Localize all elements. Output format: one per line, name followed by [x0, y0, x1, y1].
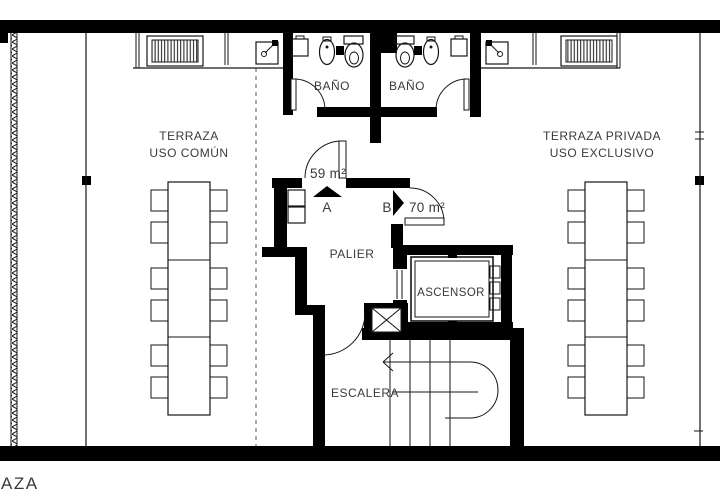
ascensor-label: ASCENSOR	[417, 287, 485, 299]
bathroom-right-wall	[470, 33, 481, 117]
sink-fixture	[256, 40, 278, 64]
duct-shaft	[372, 308, 401, 332]
elevator-right-wall	[501, 245, 512, 332]
stair-walk-line	[383, 353, 498, 418]
unit-a-area-label: 59 m²	[310, 166, 346, 181]
left-bathroom-label: BAÑO	[314, 79, 350, 93]
unit-a-label: A	[322, 200, 331, 215]
unit-a-arrow-icon	[313, 186, 342, 197]
right-terrace-label-line2: USO EXCLUSIVO	[550, 146, 655, 160]
toilet-fixture	[395, 36, 414, 67]
palier-closet	[288, 190, 305, 223]
escalera-label: ESCALERA	[331, 386, 399, 400]
left-bathroom-fixtures	[292, 36, 363, 67]
unit-b-arrow-icon	[393, 190, 404, 216]
washbasin-fixture	[292, 39, 308, 56]
bidet-fixture	[320, 37, 335, 65]
right-table-group	[568, 182, 644, 415]
left-table-group	[151, 182, 227, 415]
top-wall	[0, 20, 720, 33]
chairs	[568, 190, 644, 398]
toilet-fixture	[344, 36, 363, 67]
floor-plan: TERRAZA USO COMÚN TERRAZA PRIVADA USO EX…	[0, 0, 720, 499]
left-counter	[133, 33, 283, 68]
sink-fixture	[486, 40, 508, 64]
boundary-lines	[11, 33, 704, 446]
right-bathroom-label: BAÑO	[389, 79, 425, 93]
bathroom-center-wall	[370, 33, 381, 143]
insulated-wall-hatch	[11, 33, 17, 446]
stair-right-wall	[510, 328, 524, 446]
staircase	[383, 340, 498, 446]
bottom-partial-label: AZA	[1, 474, 39, 493]
unit-b-area-label: 70 m²	[409, 200, 445, 215]
grill-fixture	[147, 36, 203, 66]
bottom-wall	[0, 446, 720, 461]
grill-fixture	[561, 36, 617, 66]
stair-door-arc	[323, 313, 365, 355]
right-bathroom-fixtures	[395, 36, 467, 67]
left-terrace-label-line2: USO COMÚN	[149, 145, 228, 160]
chairs	[151, 190, 227, 398]
table	[585, 182, 627, 415]
bidet-fixture	[424, 37, 439, 65]
right-terrace-label-line1: TERRAZA PRIVADA	[543, 129, 661, 143]
stair-left-wall	[313, 305, 325, 446]
right-bathroom-door	[436, 79, 469, 110]
right-counter	[481, 33, 620, 68]
unit-b-label: B	[382, 200, 391, 215]
table	[168, 182, 210, 415]
palier-label: PALIER	[330, 247, 375, 261]
left-terrace-label-line1: TERRAZA	[159, 129, 219, 143]
washbasin-fixture	[451, 39, 467, 56]
